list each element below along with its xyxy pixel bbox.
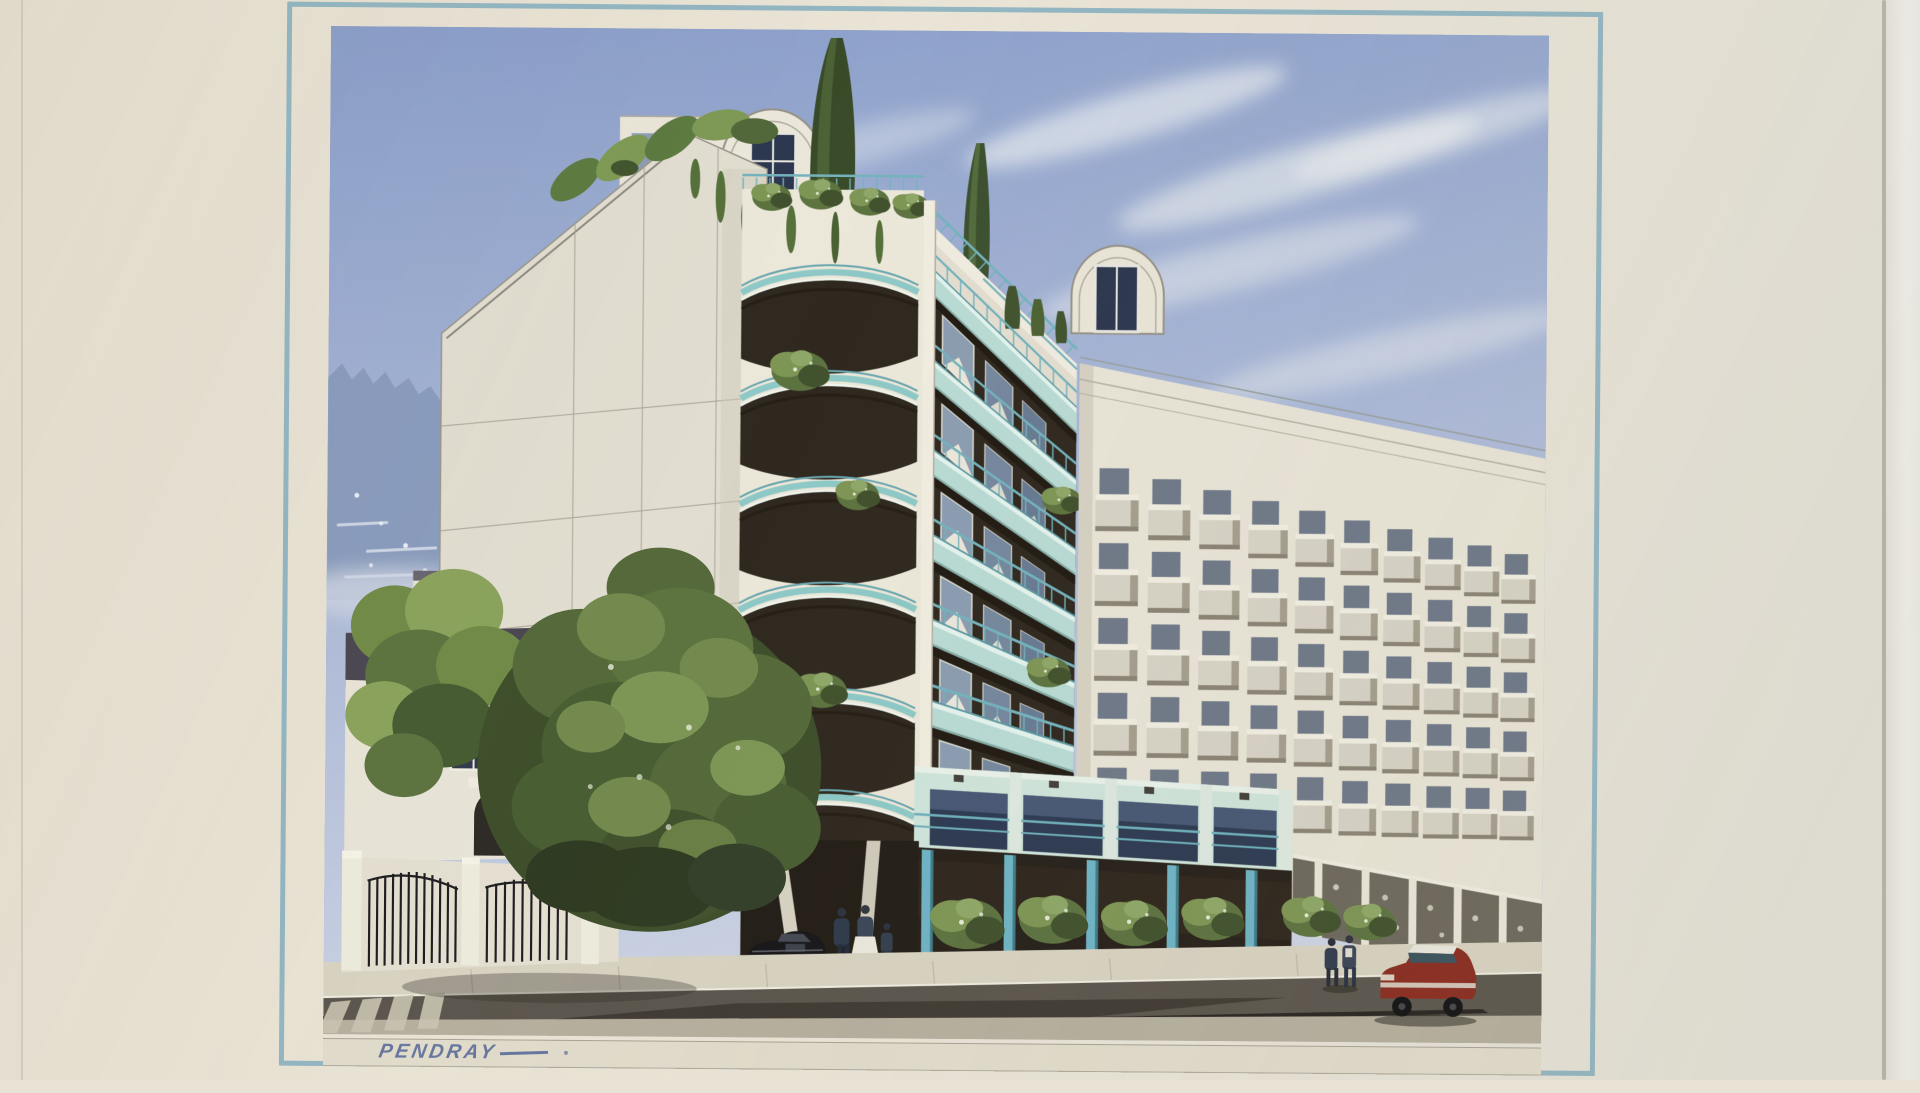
signature-flourish [500, 1051, 548, 1055]
matted-artwork: PENDRAY [0, 0, 1920, 1092]
artist-signature: PENDRAY [377, 1040, 499, 1064]
signature-mark [564, 1051, 568, 1055]
watercolor-painting-svg [323, 26, 1549, 1044]
watercolor-painting [323, 26, 1549, 1044]
framed-watercolor-photo: PENDRAY [0, 0, 1920, 1080]
frame-right-molding [1886, 0, 1920, 1080]
